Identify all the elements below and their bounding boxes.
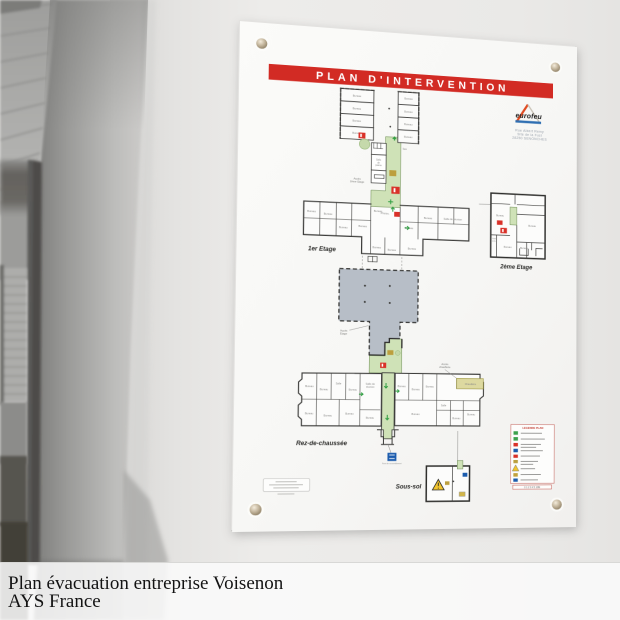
svg-text:Etage: Etage [340,332,347,336]
svg-text:LEGENDE PLAN: LEGENDE PLAN [522,426,543,430]
svg-text:Salle: Salle [336,382,342,386]
svg-text:Bureau: Bureau [345,412,354,416]
svg-text:Bureau: Bureau [324,414,333,418]
svg-text:Bureau: Bureau [528,224,536,228]
svg-text:Bureau: Bureau [408,247,417,251]
svg-text:Rez-de-chaussée: Rez-de-chaussée [296,440,347,447]
svg-text:Sous-sol: Sous-sol [396,484,422,491]
svg-text:Sas: Sas [403,148,408,151]
svg-text:Bureau: Bureau [404,97,413,101]
svg-text:Bureau: Bureau [424,216,433,220]
svg-text:Bureau: Bureau [358,224,367,228]
svg-text:Point de rassemblement: Point de rassemblement [382,462,402,465]
svg-text:Bureau: Bureau [496,213,504,217]
svg-text:eurofeu: eurofeu [516,111,543,121]
svg-text:réunion: réunion [366,385,375,389]
svg-text:1er Etage: 1er Etage [308,246,336,254]
svg-text:Bureau: Bureau [352,119,361,123]
svg-text:Bureau: Bureau [467,413,475,417]
svg-text:Bureau: Bureau [320,387,329,391]
svg-text:Bureau: Bureau [305,411,314,415]
svg-text:Salle de réunion: Salle de réunion [444,217,463,222]
svg-text:Bureau: Bureau [404,135,413,139]
svg-text:Bureau: Bureau [353,106,362,110]
svg-text:Bureau: Bureau [412,387,421,391]
svg-text:Bureau: Bureau [366,416,375,420]
svg-text:Bureau: Bureau [372,245,381,249]
svg-text:Salle: Salle [441,404,447,408]
svg-text:Chaudière: Chaudière [465,382,477,386]
svg-text:Bureau: Bureau [426,385,435,389]
svg-text:Bureau: Bureau [504,245,512,249]
svg-text:Bureau: Bureau [353,94,362,98]
svg-text:Bureau: Bureau [307,209,316,213]
svg-text:Bureau: Bureau [411,412,420,416]
svg-text:Bureau: Bureau [324,212,333,216]
svg-text:Bureau: Bureau [349,388,358,392]
svg-text:pause: pause [375,164,382,167]
svg-text:Bureau: Bureau [398,384,407,388]
svg-text:2ème Etage: 2ème Etage [350,180,365,184]
svg-text:Bureau: Bureau [388,248,397,252]
svg-text:Bureau: Bureau [404,110,413,114]
svg-text:Bureau: Bureau [404,122,413,126]
svg-text:0 1 2 3 4 5 10M: 0 1 2 3 4 5 10M [524,486,540,489]
svg-text:Photoc.: Photoc. [381,211,390,215]
svg-text:Bureau: Bureau [520,246,528,250]
svg-text:Bureau: Bureau [305,384,314,388]
svg-text:Bureau: Bureau [452,416,460,420]
svg-text:chaufferie: chaufferie [439,365,451,369]
svg-text:2ème Etage: 2ème Etage [499,264,532,272]
svg-text:Bureau: Bureau [339,225,348,229]
